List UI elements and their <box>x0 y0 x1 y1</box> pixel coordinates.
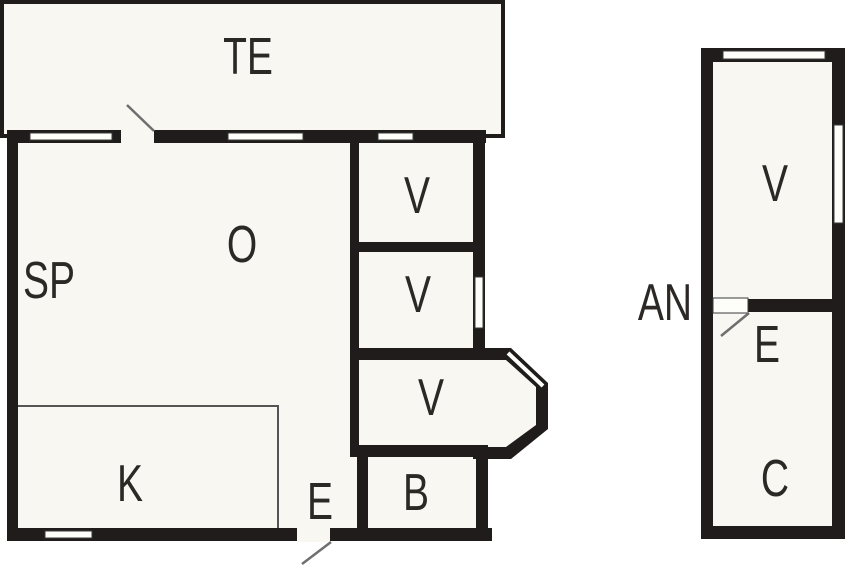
label-living-room: O <box>227 214 257 273</box>
label-kitchen: K <box>117 453 143 512</box>
floor-plan-page: TE SP O K E B V V V AN V E C <box>0 0 848 565</box>
label-annex-entry: E <box>754 314 780 373</box>
entry-door <box>297 527 331 564</box>
wall-v1-v2-divider <box>350 242 485 252</box>
annex-window-top <box>723 51 825 59</box>
window-top-1 <box>30 133 112 140</box>
label-entry: E <box>307 471 333 530</box>
wall-v3-bath-divider <box>350 445 485 457</box>
wall-v2-v3-divider <box>350 348 487 360</box>
terrace-door-opening <box>121 129 154 144</box>
label-annex-room-v: V <box>762 153 788 212</box>
window-right-v2 <box>475 277 483 328</box>
bay-window <box>473 348 548 459</box>
label-annex-name: AN <box>638 272 692 331</box>
main-building: TE SP O K E B V V V <box>2 2 548 564</box>
wall-entry-bath <box>357 445 368 537</box>
label-annex-room-c: C <box>761 448 789 507</box>
label-bedroom-v1: V <box>404 165 430 224</box>
label-bedroom-v3: V <box>418 367 444 426</box>
annex-wall-left <box>701 48 713 539</box>
label-bedroom-sp: SP <box>23 250 75 309</box>
label-terrace: TE <box>223 26 273 85</box>
floor-plan-drawing: TE SP O K E B V V V AN V E C <box>0 0 848 565</box>
window-top-3 <box>378 133 413 140</box>
annex-wall-bottom <box>701 526 845 539</box>
annex-wall-right <box>832 48 845 539</box>
label-bedroom-v2: V <box>405 264 431 323</box>
annex-building: AN V E C <box>638 48 845 539</box>
annex-window-right <box>834 125 843 223</box>
wall-v-rooms-left <box>350 130 359 455</box>
window-bottom-1 <box>45 531 92 538</box>
wall-left <box>7 130 18 541</box>
window-top-2 <box>228 133 303 140</box>
wall-right-lower <box>476 445 488 541</box>
annex-door-opening <box>713 298 748 313</box>
label-bathroom: B <box>403 462 429 521</box>
entry-door-swing <box>302 542 331 564</box>
